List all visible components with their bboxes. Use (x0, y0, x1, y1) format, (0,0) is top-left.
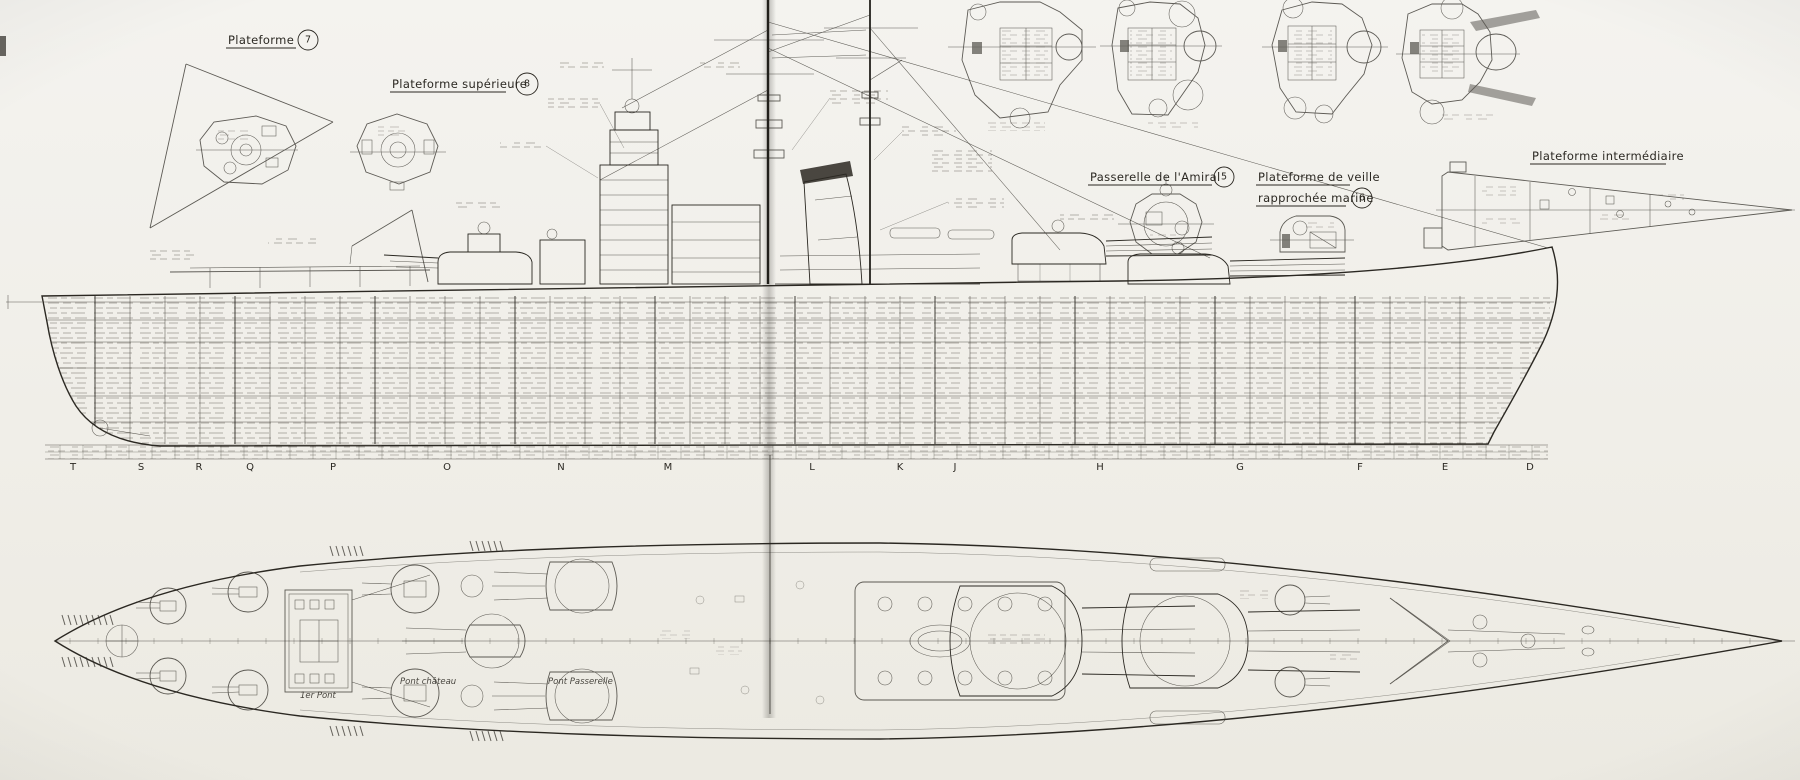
plan-deck-label: 1er Pont (300, 691, 337, 701)
station-letter: M (664, 462, 673, 473)
dimension-band (45, 445, 1548, 459)
station-letter: P (330, 462, 336, 473)
station-letter: G (1236, 462, 1244, 473)
plan-deck-label: Pont château (400, 677, 456, 687)
station-letter: H (1096, 462, 1104, 473)
scan-edge-artifact (0, 36, 6, 56)
plateforme-superieure-label: Plateforme supérieure (392, 77, 527, 91)
station-letter: J (953, 462, 957, 473)
station-letter: R (196, 462, 203, 473)
station-letter: K (897, 462, 904, 473)
passerelle-amiral-number: 5 (1221, 172, 1227, 183)
plateforme-7-number: 7 (305, 35, 311, 46)
plateforme-veille-label-line2: rapprochée marine (1258, 191, 1374, 205)
plateforme-7-label: Plateforme (228, 33, 294, 47)
station-letter: Q (246, 462, 254, 473)
station-letter: F (1357, 462, 1363, 473)
plateforme-superieure-number: 8 (524, 79, 530, 90)
passerelle-amiral-label: Passerelle de l'Amiral (1090, 170, 1221, 184)
station-letter: T (69, 462, 77, 473)
station-letter: N (557, 462, 564, 473)
fold-crease (762, 0, 776, 718)
hull-compartment-annotations (40, 296, 1554, 446)
scanned-blueprint-page: Plateforme 7 Plateforme supérieure 8 (0, 0, 1800, 780)
plateforme-intermediaire-label: Plateforme intermédiaire (1532, 149, 1684, 163)
station-letter: S (138, 462, 144, 473)
station-letter: D (1526, 462, 1534, 473)
station-letter: L (809, 462, 815, 473)
station-letter: E (1442, 462, 1448, 473)
station-letter: O (443, 462, 451, 473)
blueprint-canvas: Plateforme 7 Plateforme supérieure 8 (0, 0, 1800, 780)
plan-deck-label: Pont Passerelle (548, 677, 613, 687)
